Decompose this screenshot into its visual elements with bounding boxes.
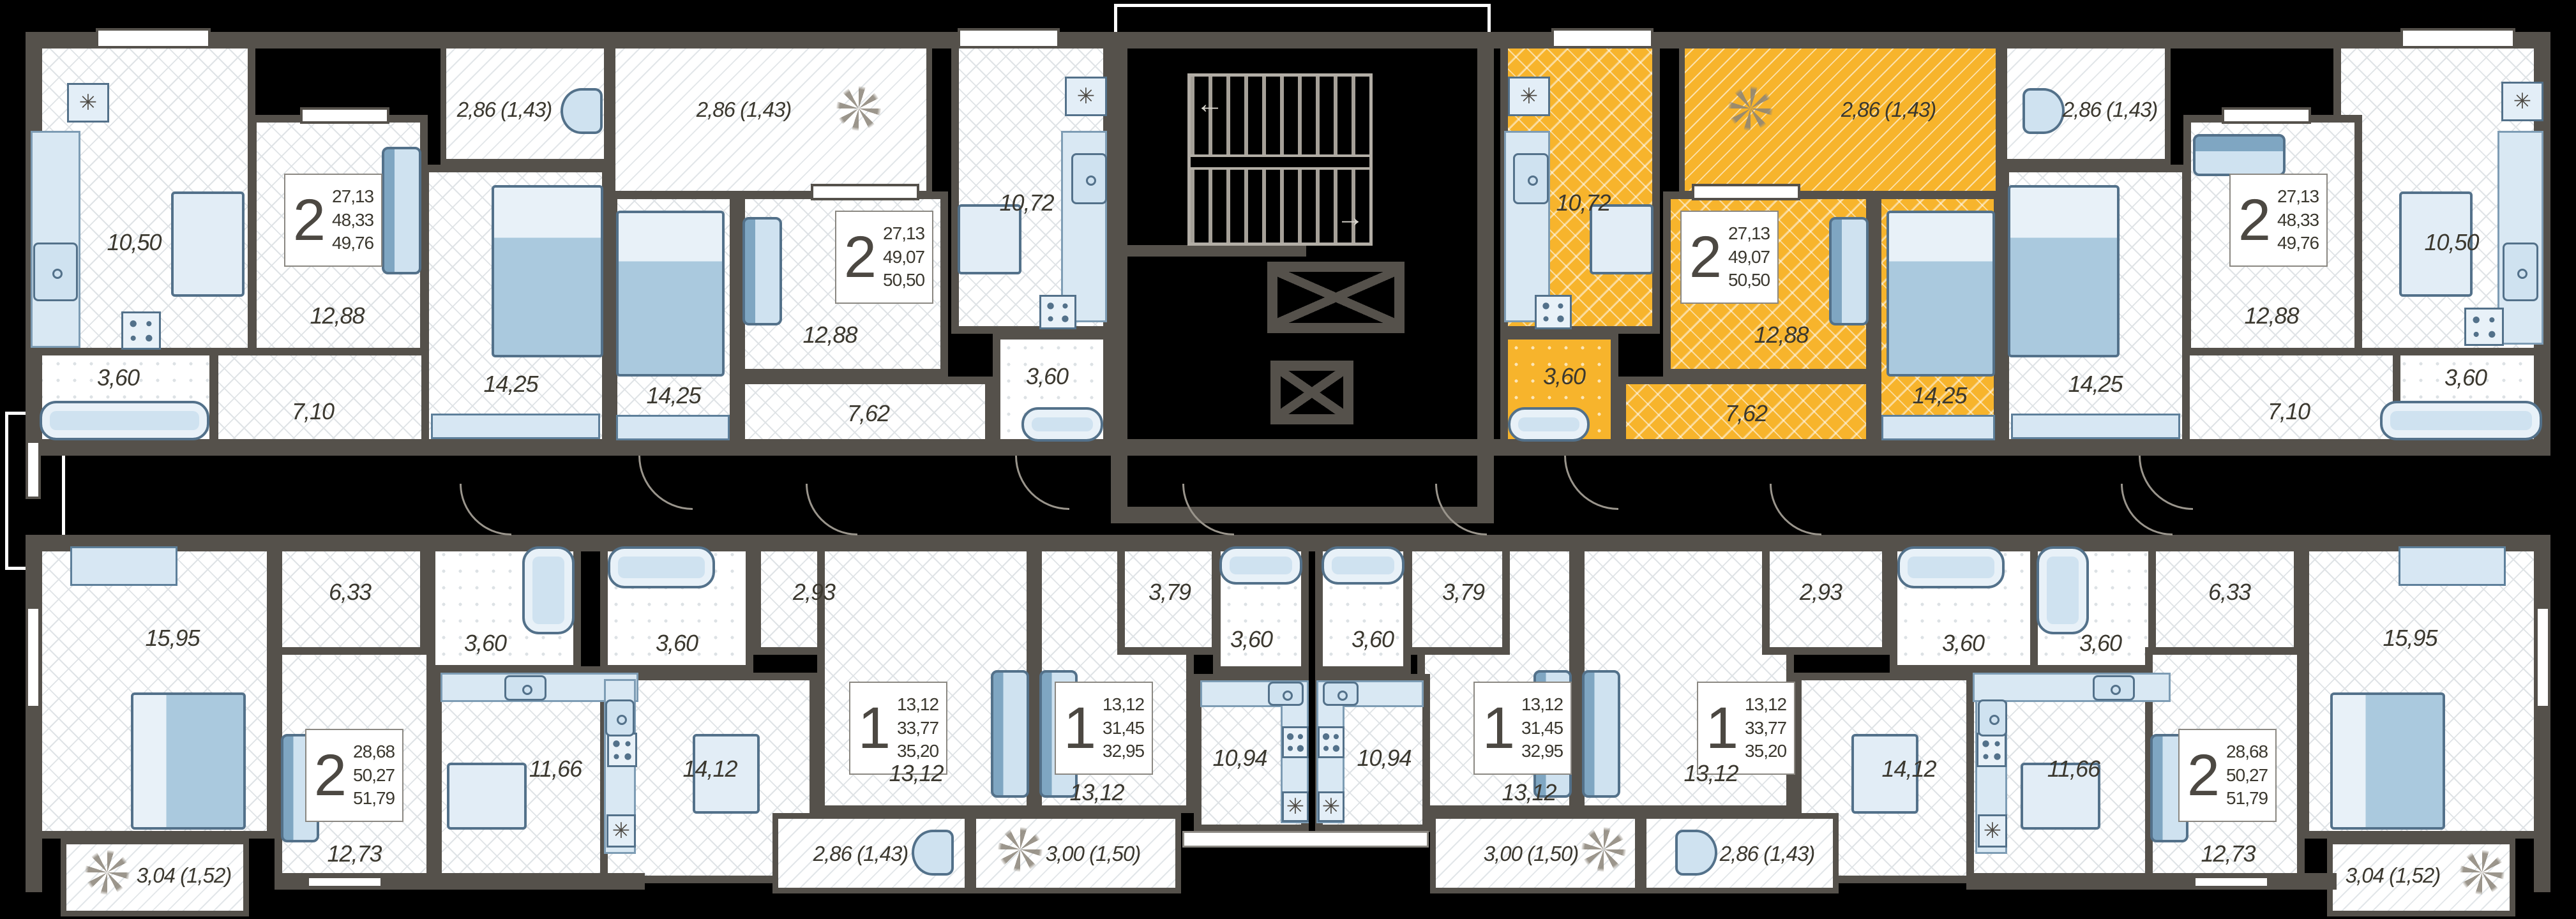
door-arc [1015,456,1069,510]
stair-arrow-down-icon: → [1336,202,1364,234]
door-arc [1182,484,1234,535]
apartment-t3-highlighted[interactable] [1500,37,2001,456]
apartment-b1[interactable] [26,535,645,918]
apartment-b2[interactable] [600,535,1034,893]
core-wall-inner [1127,245,1306,257]
elevator-shaft-small [1270,361,1353,424]
door-arc [1564,456,1618,510]
apartment-b3[interactable] [970,535,1315,893]
door-arc [638,456,693,510]
apartment-t4[interactable] [2001,37,2550,456]
stair-arrow-up-icon: ← [1196,88,1224,120]
stairwell: ← → [1187,73,1373,246]
door-arc [1435,484,1487,535]
apartment-t2[interactable] [610,37,1111,456]
door-arc [460,484,511,535]
door-arc [2121,484,2173,535]
apartment-b5[interactable] [1577,535,2017,893]
floor-plan: ← → [0,0,2576,919]
apartment-b6[interactable] [1966,535,2550,918]
elevator-shaft-large [1267,262,1405,333]
stair-landing [1191,154,1369,170]
door-arc [806,484,857,535]
door-arc [1770,484,1821,535]
apartment-t1[interactable] [26,37,610,456]
core-wall-bottom [1111,507,1494,523]
